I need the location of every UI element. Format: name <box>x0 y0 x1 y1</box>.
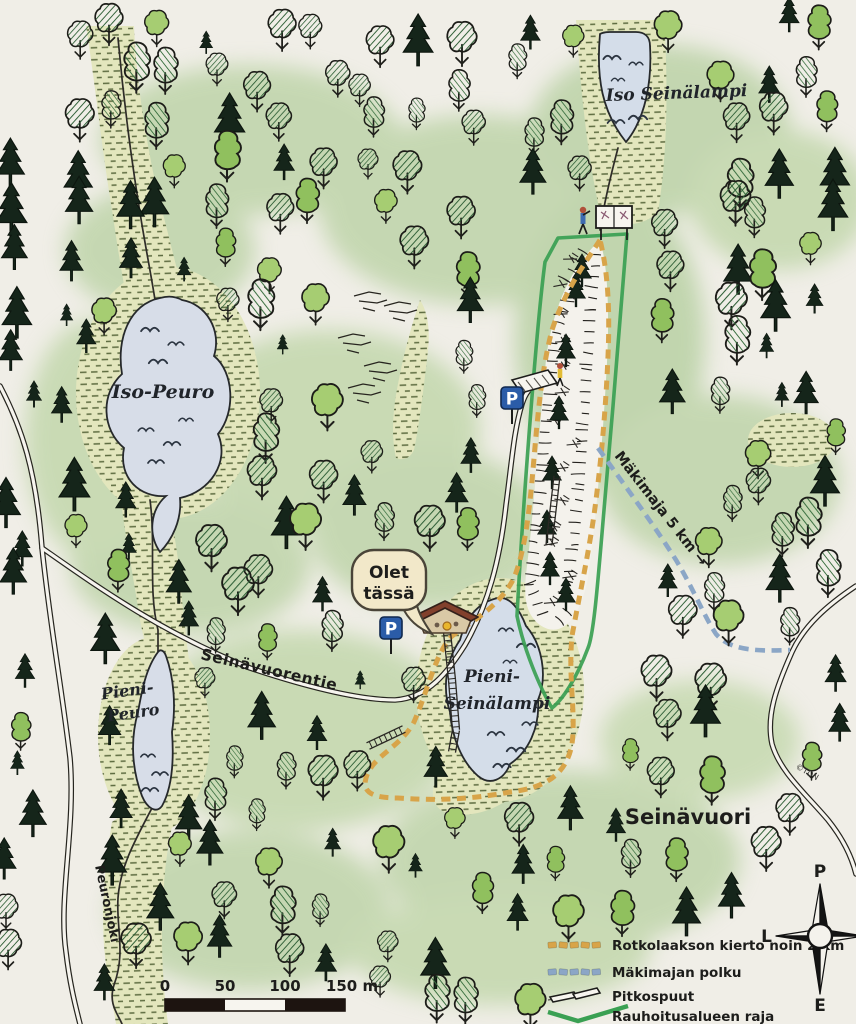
compass-south: E <box>814 996 826 1016</box>
parking-letter: P <box>385 620 397 640</box>
legend-dash <box>548 969 557 976</box>
legend-dash <box>592 969 601 976</box>
cliff-hatch <box>571 545 578 546</box>
map-svg: P P Olet tässä Iso Seinälampi Iso-Peuro … <box>0 0 856 1024</box>
scale-tick-2: 100 <box>269 977 300 995</box>
cliff-hatch <box>582 413 589 414</box>
scale-tick-1: 50 <box>215 977 236 995</box>
you-are-here-line1: Olet <box>369 563 409 583</box>
label-pieni-seinalampi-1: Pieni- <box>463 667 520 687</box>
legend-item-3: Rauhoitusalueen raja <box>612 1009 774 1024</box>
cliff-hatch <box>541 421 552 422</box>
cliff-hatch <box>537 465 549 466</box>
scale-tick-3: 150 m <box>326 977 378 995</box>
compass-west: L <box>761 927 772 947</box>
legend-dash <box>548 942 557 949</box>
legend-item-1: Mäkimajan polku <box>612 965 742 981</box>
cliff-hatch <box>569 522 581 523</box>
legend-dash <box>570 942 579 949</box>
legend-symbol-dashed-orange <box>548 942 601 949</box>
label-seinavuori: Seinävuori <box>625 805 751 829</box>
trail-map: P P Olet tässä Iso Seinälampi Iso-Peuro … <box>0 0 856 1024</box>
label-iso-peuro: Iso-Peuro <box>111 381 215 403</box>
legend-dash <box>559 942 568 949</box>
legend-dash <box>559 969 568 976</box>
legend-dash <box>581 969 590 976</box>
cliff-hatch <box>572 462 586 463</box>
legend-dash <box>570 969 579 976</box>
compass-north: P <box>814 862 826 882</box>
cliff-hatch <box>543 405 552 406</box>
you-are-here-line2: tässä <box>363 584 414 604</box>
cliff-hatch <box>571 474 585 475</box>
label-pieni-seinalampi-2: Seinälampi <box>444 694 551 714</box>
legend-symbol-dashed-blue <box>548 969 601 976</box>
cliff-hatch <box>576 451 587 452</box>
legend-dash <box>581 942 590 949</box>
legend-dash <box>592 942 601 949</box>
scale-tick-0: 0 <box>160 977 170 995</box>
parking-letter: P <box>506 390 518 410</box>
legend-item-2: Pitkospuut <box>612 989 695 1005</box>
